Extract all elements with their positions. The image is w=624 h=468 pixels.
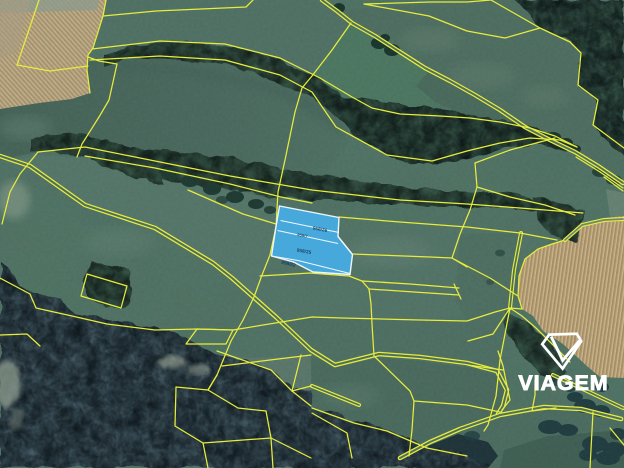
svg-text:VIAGEM: VIAGEM bbox=[518, 371, 608, 395]
